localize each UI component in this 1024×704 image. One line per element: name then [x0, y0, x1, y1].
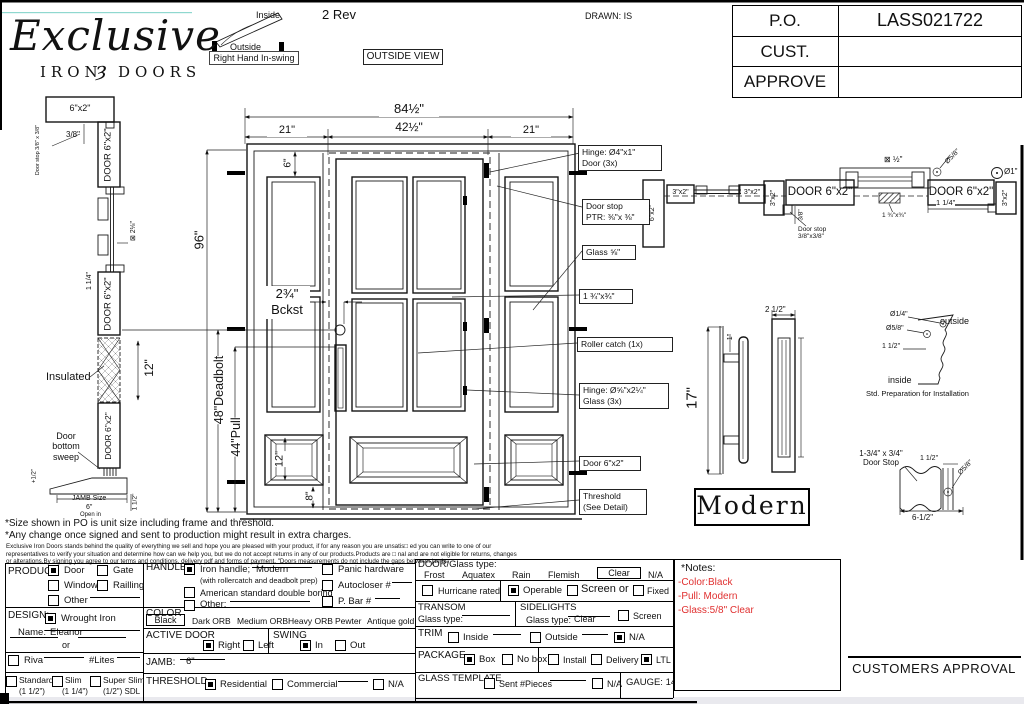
option-label: Out	[350, 641, 365, 652]
dim-label: 3/8"	[66, 130, 80, 139]
cust-label: CUST.	[732, 42, 838, 62]
callout-rail: 1 ¾"x¾"	[579, 289, 633, 304]
option-label: Right	[218, 641, 240, 652]
option-label: American standard double boring	[200, 588, 333, 598]
checkbox-out[interactable]	[335, 640, 346, 651]
option-label: Standard	[19, 676, 54, 686]
deadbolt-height-label: 48"Deadbolt	[212, 356, 226, 424]
checkbox-hurricane[interactable]	[422, 585, 433, 596]
option-label: Panic hardware	[338, 565, 404, 576]
color-option[interactable]: Dark ORB	[192, 617, 231, 627]
dim-label: 6-1/2"	[912, 513, 933, 522]
option-label: Autocloser #	[338, 581, 391, 592]
checkbox-slim[interactable]	[52, 676, 63, 687]
outside-label: outside	[940, 316, 969, 326]
glass-option[interactable]: Frost	[424, 570, 445, 580]
profile-label: 3"x2"	[667, 189, 694, 197]
checkbox-template-na[interactable]	[592, 678, 603, 689]
callout-glass: Glass ⅝"	[582, 245, 636, 260]
option-label: Delivery	[606, 655, 639, 665]
checkbox-wrought-iron[interactable]	[45, 613, 56, 624]
checkbox-gate[interactable]	[97, 565, 108, 576]
checkbox-trim-outside[interactable]	[530, 632, 541, 643]
option-label: LTL	[656, 655, 671, 665]
callout-door-stop: Door stop PTR: ⅜"x ⅜"	[582, 199, 650, 225]
callout-hinge-door: Hinge: Ø4"x1" Door (3x)	[578, 145, 662, 171]
po-label: P.O.	[732, 11, 838, 31]
notes-title: *Notes:	[681, 562, 715, 574]
lites-label: #Lites	[89, 656, 114, 667]
checkbox-super-slim[interactable]	[90, 676, 101, 687]
option-sub: (1/2") SDL	[103, 687, 140, 696]
disclaimer-line: *Any change once signed and sent to prod…	[5, 530, 351, 542]
door-stop-note: Door stop 3/8" x 3/8"	[35, 125, 41, 175]
dim-label: 2 1/2"	[765, 305, 786, 314]
pull-height-label: 44"Pull	[229, 417, 243, 456]
blank-line[interactable]	[462, 614, 510, 616]
po-table-row-line	[732, 66, 1022, 67]
option-label: N/A	[388, 680, 404, 691]
door-stop-detail-label: 1-3/4" x 3/4" Door Stop	[852, 449, 910, 467]
checkbox-railing[interactable]	[97, 580, 108, 591]
option-label: Left	[258, 641, 274, 652]
blank-line[interactable]	[375, 597, 400, 599]
checkbox-right[interactable]	[203, 640, 214, 651]
drawn-by-label: DRAWN: IS	[585, 11, 632, 21]
form-line	[143, 673, 415, 674]
blank-line	[252, 566, 312, 568]
dash-line	[10, 636, 58, 638]
dim-overall-width: 84½"	[379, 102, 439, 117]
door-profile-label: DOOR 6"x2"	[104, 277, 115, 330]
gauge-label: GAUGE: 14	[626, 678, 676, 689]
dim-label: Ø1/4"	[890, 311, 908, 319]
swing-inside-label: Inside	[256, 10, 280, 20]
callout-roller-catch: Roller catch (1x)	[577, 337, 673, 352]
option-label: Other	[64, 596, 88, 607]
trim-title: TRIM	[418, 628, 442, 640]
glass-type-label: Glass type:	[526, 615, 571, 625]
blank-line	[568, 615, 610, 617]
drawing-linework	[0, 0, 1024, 704]
dim-label: 6"	[282, 158, 294, 167]
signature-line[interactable]	[848, 656, 1021, 658]
revision-label: 2 Rev	[322, 8, 356, 23]
dim-label: 8"	[304, 491, 316, 500]
checkbox-trim-na[interactable]	[614, 632, 625, 643]
profile-label: 3"x2"	[1002, 190, 1010, 206]
logo-word-iron: IRON	[40, 64, 103, 81]
blank-line[interactable]	[44, 656, 84, 658]
option-label: Window	[64, 581, 98, 592]
po-table-row-line	[732, 36, 1022, 37]
note-glass: -Glass:5/8" Clear	[678, 605, 754, 617]
option-label: Railling	[113, 581, 144, 592]
inside-label: inside	[888, 375, 912, 385]
outside-view-box: OUTSIDE VIEW	[363, 49, 443, 65]
checkbox-american-standard[interactable]	[184, 587, 195, 598]
option-label: Hurricane rated	[438, 586, 500, 596]
form-line	[415, 698, 673, 699]
option-label: Other:	[200, 600, 226, 611]
glass-thickness-label: ⊠ 2⅛"	[130, 221, 138, 241]
dim-label: 12"	[274, 451, 287, 467]
checkbox-riva[interactable]	[8, 655, 19, 666]
backset-label: 2¾" Bckst	[264, 286, 310, 319]
checkbox-door[interactable]	[48, 565, 59, 576]
checkbox-sidelight-screen[interactable]	[618, 610, 629, 621]
checkbox-other[interactable]	[48, 595, 59, 606]
dim-label: 1 ¾"x¾"	[882, 212, 906, 219]
color-option[interactable]: Medium ORB	[237, 617, 288, 627]
door-stop-note: Door stop 3/8"x3/8"	[798, 226, 826, 241]
profile-label: 3"x2"	[739, 189, 765, 197]
blank-line	[180, 658, 225, 660]
glass-type-label: Glass type:	[418, 614, 463, 624]
option-label: Box	[479, 655, 495, 666]
option-label: Screen or	[581, 583, 629, 596]
dim-label: 42½"	[385, 121, 433, 135]
option-label: Super Slim	[103, 676, 145, 686]
po-value: LASS021722	[838, 10, 1022, 31]
jamb-size-label: 6"x2"	[51, 103, 109, 113]
form-line	[515, 601, 516, 626]
color-option[interactable]: Heavy ORB	[288, 617, 333, 627]
checkbox-screen[interactable]	[567, 585, 578, 596]
blank-line[interactable]	[90, 596, 140, 598]
option-label: Operable	[523, 586, 562, 597]
fine-print: Exclusive Iron Doors stands behind the q…	[6, 543, 491, 550]
checkbox-p-bar[interactable]	[322, 596, 333, 607]
door-profile-label: DOOR 6"x2"	[786, 186, 854, 199]
package-title: PACKAGE	[418, 650, 466, 662]
dim-label: 12"	[143, 359, 157, 377]
disclaimer-line: *Size shown in PO is unit size including…	[5, 518, 274, 530]
form-line	[143, 653, 415, 654]
color-option[interactable]: Antique gold	[367, 617, 414, 627]
dim-label: 1 1/4"	[86, 272, 94, 290]
sidelights-title: SIDELIGHTS	[520, 603, 577, 614]
checkbox-no-box[interactable]	[502, 654, 513, 665]
swing-type-box: Right Hand In-swing	[209, 51, 299, 65]
checkbox-iron-handle[interactable]	[184, 564, 195, 575]
door-profile-label: DOOR 6"x2"	[104, 412, 114, 460]
option-label: P. Bar #	[338, 597, 371, 608]
checkbox-handle-other[interactable]	[184, 600, 195, 611]
checkbox-delivery[interactable]	[591, 654, 602, 665]
logo-ornament: ȝ	[96, 58, 106, 81]
option-label: Inside	[463, 633, 488, 644]
form-line	[5, 672, 143, 673]
form-line	[415, 647, 673, 648]
logo-word-doors: DOORS	[118, 64, 201, 81]
customers-approval-label: CUSTOMERS APPROVAL	[845, 662, 1023, 677]
blank-line[interactable]	[338, 680, 368, 682]
option-label: Fixed	[647, 586, 669, 596]
option-label: Gate	[113, 566, 134, 577]
glass-option[interactable]: Flemish	[548, 570, 580, 580]
checkbox-panic-hardware[interactable]	[322, 564, 333, 575]
option-label: Riva	[24, 656, 43, 667]
option-label: Residential	[220, 680, 267, 691]
dim-height: 96"	[193, 230, 208, 249]
dim-label: Ø1"	[1004, 167, 1018, 176]
design-title: DESIGN:	[8, 610, 49, 622]
option-label: N/A	[607, 679, 622, 689]
checkbox-commercial[interactable]	[272, 679, 283, 690]
note-pull: -Pull: Modern	[678, 591, 737, 603]
dim-label: 21"	[267, 124, 307, 137]
option-label: Screen	[633, 611, 662, 621]
checkbox-sent[interactable]	[484, 678, 495, 689]
dim-label: 3/8"	[797, 209, 804, 220]
profile-label: 6"x2"	[649, 205, 657, 221]
option-label: Outside	[545, 633, 578, 644]
option-label: Wrought Iron	[61, 614, 116, 625]
dash-line	[78, 636, 126, 638]
option-label: Door	[64, 566, 85, 577]
profile-label: 3"x2"	[770, 190, 778, 206]
dim-label: 1 1/2"	[882, 343, 900, 351]
dim-label: 1"	[727, 334, 735, 340]
form-line	[415, 626, 673, 627]
option-sub: (1 1/2")	[19, 687, 45, 696]
approve-label: APPROVE	[732, 72, 838, 92]
logo-script: Exclusive	[10, 12, 221, 60]
checkbox-trim-inside[interactable]	[448, 632, 459, 643]
option-label: In	[315, 641, 323, 652]
checkbox-box[interactable]	[464, 654, 475, 665]
glass-option[interactable]: Rain	[512, 570, 531, 580]
glass-thickness-label: ⊠ ½"	[884, 155, 902, 164]
dim-label: 1 1/2"	[131, 494, 138, 511]
form-line	[143, 628, 415, 629]
option-label: N/A	[629, 633, 645, 644]
spec-sheet: Exclusive IRON ȝ DOORS Inside Outside Ri…	[0, 0, 1024, 704]
blank-line[interactable]	[550, 679, 586, 681]
fine-print: representatives to verify your situation…	[6, 551, 517, 558]
blank-line	[45, 629, 140, 631]
jamb-size-caption: JAMB Size	[72, 495, 106, 503]
preparation-caption: Std. Preparation for Installation	[866, 390, 969, 399]
door-sweep-label: Door bottom sweep	[46, 431, 86, 462]
option-label: Slim	[65, 676, 82, 686]
glass-option[interactable]: N/A	[648, 570, 663, 580]
dim-label: 1 1/2"	[920, 455, 938, 463]
jamb-title: JAMB:	[146, 657, 175, 669]
insulated-label: Insulated	[46, 371, 91, 384]
option-label: Iron handle;	[200, 565, 250, 576]
jamb-size-value: 6"	[86, 504, 92, 512]
checkbox-threshold-na[interactable]	[373, 679, 384, 690]
callout-hinge-glass: Hinge: Ø⅝"x2¼" Glass (3x)	[579, 383, 669, 409]
pull-length-label: 17"	[683, 387, 700, 409]
or-label: or	[62, 640, 70, 650]
checkbox-window[interactable]	[48, 580, 59, 591]
form-line	[5, 702, 415, 703]
checkbox-left[interactable]	[243, 640, 254, 651]
glass-option-selected[interactable]: Clear	[597, 567, 641, 579]
door-profile-label: DOOR 6"x2"	[104, 128, 115, 181]
dim-label: 1 1/4"	[936, 199, 955, 208]
checkbox-autocloser[interactable]	[322, 580, 333, 591]
note-color: -Color:Black	[678, 577, 732, 589]
option-sub: (with rollercatch and deadbolt prep)	[200, 577, 318, 586]
blank-line[interactable]	[582, 633, 608, 635]
blank-line[interactable]	[392, 581, 412, 583]
threshold-title: THRESHOLD	[146, 676, 208, 688]
checkbox-fixed[interactable]	[633, 585, 644, 596]
checkbox-operable[interactable]	[508, 585, 519, 596]
option-label: Sent #Pieces	[499, 679, 552, 689]
option-label: Install	[563, 655, 587, 665]
callout-door-rail: Door 6"x2"	[579, 456, 641, 471]
option-label: No box	[517, 655, 547, 666]
glass-option[interactable]: Aquatex	[462, 570, 495, 580]
checkbox-in[interactable]	[300, 640, 311, 651]
transom-title: TRANSOM	[418, 603, 466, 614]
option-label: Commercial	[287, 680, 338, 691]
callout-threshold: Threshold (See Detail)	[579, 489, 647, 515]
checkbox-install[interactable]	[548, 654, 559, 665]
dim-label: +1/2"	[32, 469, 39, 483]
handle-title: HANDLE	[146, 562, 187, 574]
blank-line[interactable]	[493, 633, 521, 635]
option-sub: (1 1/4")	[62, 687, 88, 696]
handle-style-box: Modern	[694, 488, 810, 526]
form-line	[415, 580, 673, 581]
dim-label: 21"	[511, 124, 551, 137]
blank-line[interactable]	[117, 656, 140, 658]
form-line	[415, 559, 416, 703]
color-selected-box[interactable]: Black	[146, 614, 185, 626]
form-line	[500, 580, 501, 601]
color-option[interactable]: Pewter	[335, 617, 361, 627]
blank-line[interactable]	[230, 600, 310, 602]
checkbox-ltl[interactable]	[641, 654, 652, 665]
checkbox-standard[interactable]	[6, 676, 17, 687]
checkbox-residential[interactable]	[205, 679, 216, 690]
dim-label: Ø5/8"	[886, 325, 904, 333]
form-line	[5, 652, 143, 653]
